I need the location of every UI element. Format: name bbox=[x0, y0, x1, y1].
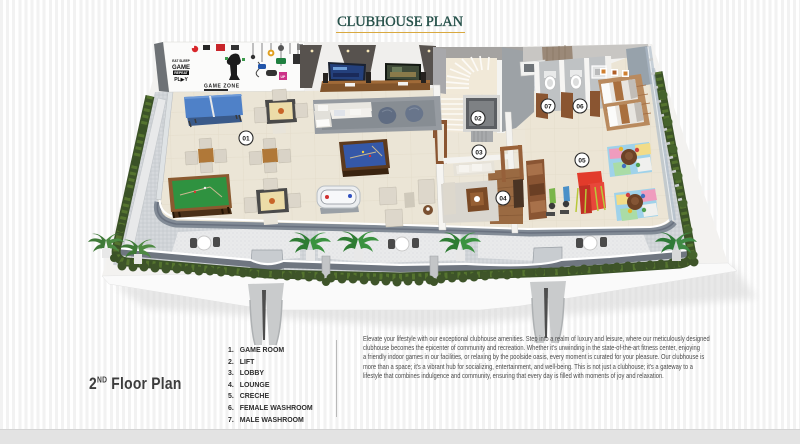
svg-text:01: 01 bbox=[242, 136, 250, 143]
svg-text:02: 02 bbox=[474, 116, 482, 123]
svg-text:07: 07 bbox=[544, 104, 552, 111]
svg-text:06: 06 bbox=[576, 104, 584, 111]
svg-text:04: 04 bbox=[499, 196, 507, 203]
svg-text:REPEAT: REPEAT bbox=[174, 71, 188, 75]
svg-text:EAT SLEEP: EAT SLEEP bbox=[172, 59, 190, 63]
svg-text:PL▶Y: PL▶Y bbox=[174, 77, 188, 83]
svg-text:05: 05 bbox=[578, 158, 586, 165]
svg-text:03: 03 bbox=[475, 150, 483, 157]
svg-text:GAME: GAME bbox=[172, 65, 190, 71]
svg-text:UP: UP bbox=[281, 75, 286, 79]
svg-text:GAME ZONE: GAME ZONE bbox=[204, 84, 240, 90]
